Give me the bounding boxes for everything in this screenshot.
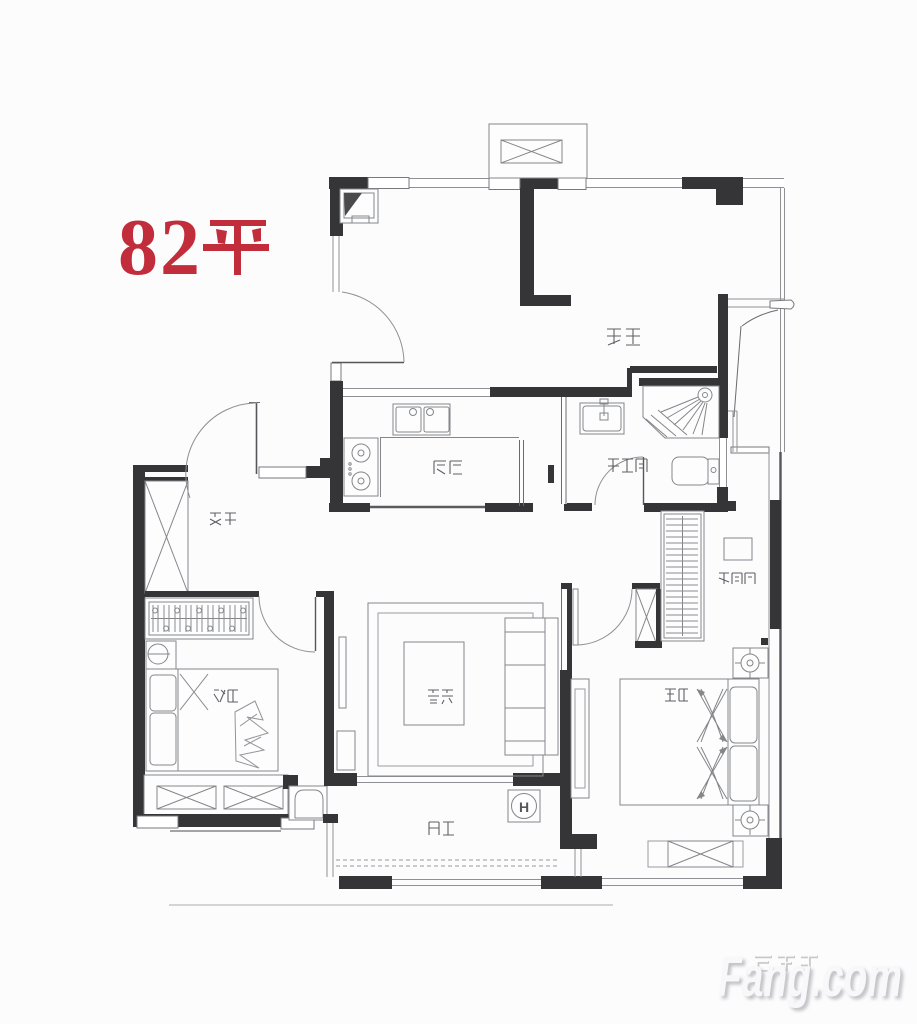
svg-text:H: H [519, 799, 529, 815]
svg-text:Fang.com: Fang.com [718, 945, 902, 1009]
